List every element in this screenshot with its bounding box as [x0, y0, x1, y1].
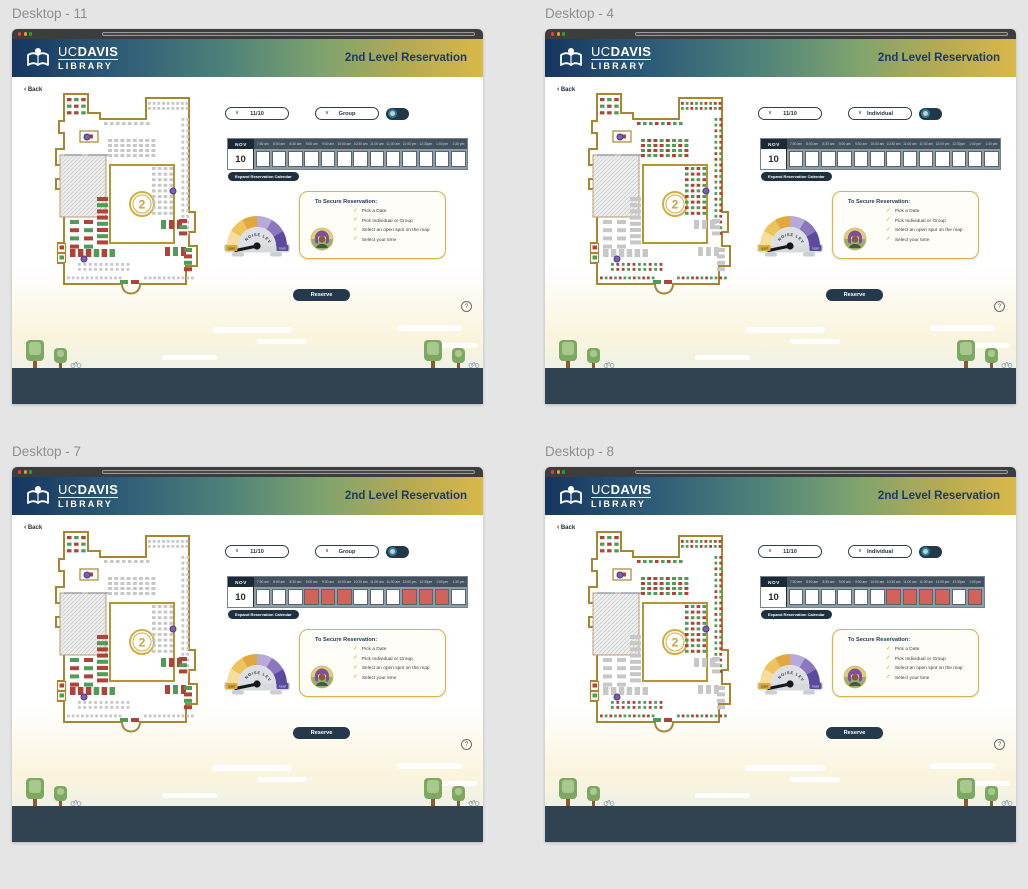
seat-taken[interactable]	[685, 644, 689, 647]
seat-open[interactable]	[686, 107, 689, 110]
time-slot-booked[interactable]	[935, 589, 950, 605]
seat-taken[interactable]	[682, 715, 685, 718]
seat-open[interactable]	[600, 543, 605, 546]
seat-open[interactable]	[702, 639, 706, 642]
seat-open[interactable]	[715, 630, 718, 633]
seat-taken[interactable]	[70, 249, 76, 257]
seat-open[interactable]	[715, 624, 718, 627]
seat-open[interactable]	[649, 122, 653, 125]
seat-open[interactable]	[81, 111, 86, 114]
seat-open[interactable]	[715, 147, 718, 150]
seat-taken[interactable]	[690, 107, 693, 110]
seat-open[interactable]	[691, 605, 695, 608]
seat-taken[interactable]	[719, 204, 722, 207]
seat-taken[interactable]	[719, 579, 722, 582]
seat-taken[interactable]	[600, 549, 605, 552]
time-slot-open[interactable]	[886, 151, 901, 167]
seat-taken[interactable]	[131, 718, 139, 722]
seat-open[interactable]	[691, 178, 695, 181]
seat-taken[interactable]	[697, 611, 701, 614]
time-slot-booked[interactable]	[968, 589, 983, 605]
seat-taken[interactable]	[697, 195, 701, 198]
seat-open[interactable]	[697, 616, 701, 619]
seat-open[interactable]	[702, 611, 706, 614]
time-slot-open[interactable]	[304, 151, 319, 167]
seat-open[interactable]	[700, 540, 703, 543]
seat-taken[interactable]	[719, 277, 722, 280]
seat-taken[interactable]	[102, 687, 108, 695]
seat-open[interactable]	[70, 236, 79, 240]
seat-taken[interactable]	[719, 192, 722, 195]
seat-open[interactable]	[702, 212, 706, 215]
seat-taken[interactable]	[719, 545, 722, 548]
seat-open[interactable]	[701, 715, 704, 718]
seat-open[interactable]	[647, 144, 651, 147]
seat-open[interactable]	[691, 616, 695, 619]
seat-taken[interactable]	[179, 231, 187, 235]
seat-open[interactable]	[70, 674, 79, 678]
seat-open[interactable]	[719, 613, 722, 616]
seat-taken[interactable]	[719, 715, 722, 718]
seat-open[interactable]	[647, 154, 651, 157]
seat-taken[interactable]	[685, 195, 689, 198]
seat-open[interactable]	[638, 701, 641, 704]
seat-taken[interactable]	[660, 263, 663, 266]
time-slot-open[interactable]	[952, 589, 967, 605]
seat-taken[interactable]	[719, 562, 722, 565]
seat-taken[interactable]	[593, 684, 598, 688]
time-slot-open[interactable]	[805, 151, 820, 167]
seat-taken[interactable]	[681, 102, 684, 105]
seat-open[interactable]	[660, 587, 664, 590]
seat-taken[interactable]	[67, 98, 72, 101]
seat-open[interactable]	[719, 590, 722, 593]
floor-map[interactable]: 2	[34, 529, 210, 737]
seat-open[interactable]	[685, 212, 689, 215]
seat-open[interactable]	[719, 129, 722, 132]
time-slot-booked[interactable]	[886, 589, 901, 605]
seat-taken[interactable]	[642, 277, 645, 280]
seat-open[interactable]	[624, 715, 627, 718]
seat-open[interactable]	[97, 234, 108, 238]
seat-taken[interactable]	[691, 622, 695, 625]
seat-open[interactable]	[710, 715, 713, 718]
seat-taken[interactable]	[715, 596, 718, 599]
time-slot-open[interactable]	[353, 589, 368, 605]
seat-taken[interactable]	[184, 705, 192, 709]
time-slot-open[interactable]	[402, 151, 417, 167]
seat-taken[interactable]	[697, 212, 701, 215]
seat-taken[interactable]	[70, 228, 79, 232]
seat-open[interactable]	[161, 658, 166, 667]
seat-taken[interactable]	[664, 718, 672, 722]
seat-taken[interactable]	[74, 111, 79, 114]
map-toggle-switch[interactable]	[919, 108, 942, 120]
seat-taken[interactable]	[691, 201, 695, 204]
seat-taken[interactable]	[102, 249, 108, 257]
seat-taken[interactable]	[709, 107, 712, 110]
seat-taken[interactable]	[697, 639, 701, 642]
seat-taken[interactable]	[647, 587, 651, 590]
time-slot-open[interactable]	[353, 151, 368, 167]
time-slot-booked[interactable]	[435, 589, 450, 605]
seat-open[interactable]	[695, 545, 698, 548]
seat-open[interactable]	[677, 277, 680, 280]
seat-taken[interactable]	[709, 545, 712, 548]
seat-open[interactable]	[714, 107, 717, 110]
seat-open[interactable]	[661, 122, 665, 125]
seat-taken[interactable]	[622, 706, 625, 709]
seat-taken[interactable]	[600, 536, 605, 539]
time-slot-booked[interactable]	[419, 589, 434, 605]
seat-open[interactable]	[647, 582, 651, 585]
seat-taken[interactable]	[719, 619, 722, 622]
seat-open[interactable]	[672, 139, 676, 142]
time-slot-open[interactable]	[272, 589, 287, 605]
seat-open[interactable]	[685, 173, 689, 176]
seat-taken[interactable]	[78, 249, 84, 257]
seat-open[interactable]	[702, 633, 706, 636]
seat-open[interactable]	[686, 540, 689, 543]
seat-taken[interactable]	[685, 178, 689, 181]
seat-open[interactable]	[715, 653, 718, 656]
seat-open[interactable]	[697, 189, 701, 192]
seat-taken[interactable]	[715, 158, 718, 161]
seat-taken[interactable]	[672, 154, 676, 157]
seat-open[interactable]	[715, 715, 718, 718]
seat-open[interactable]	[715, 562, 718, 565]
seat-open[interactable]	[643, 122, 647, 125]
seat-open[interactable]	[715, 124, 718, 127]
seat-taken[interactable]	[633, 268, 636, 271]
date-dropdown[interactable]: ∨ 11/10	[758, 107, 822, 120]
reserve-button[interactable]: Reserve	[826, 289, 883, 301]
time-slot-open[interactable]	[451, 589, 466, 605]
seat-taken[interactable]	[86, 249, 92, 257]
seat-taken[interactable]	[691, 277, 694, 280]
seat-open[interactable]	[184, 261, 192, 265]
seat-taken[interactable]	[653, 139, 657, 142]
seat-open[interactable]	[705, 107, 708, 110]
seat-open[interactable]	[672, 587, 676, 590]
expand-calendar-button[interactable]: Expand Reservation Calendar	[761, 172, 832, 181]
seat-open[interactable]	[607, 536, 612, 539]
time-slot-booked[interactable]	[304, 589, 319, 605]
seat-open[interactable]	[702, 167, 706, 170]
seat-open[interactable]	[643, 706, 646, 709]
seat-open[interactable]	[695, 107, 698, 110]
seat-taken[interactable]	[666, 139, 670, 142]
seat-taken[interactable]	[684, 587, 688, 590]
seat-taken[interactable]	[649, 706, 652, 709]
seat-open[interactable]	[715, 164, 718, 167]
seat-open[interactable]	[700, 102, 703, 105]
seat-taken[interactable]	[647, 277, 650, 280]
seat-open[interactable]	[685, 627, 689, 630]
seat-open[interactable]	[701, 277, 704, 280]
seat-taken[interactable]	[600, 277, 603, 280]
seat-open[interactable]	[678, 592, 682, 595]
seat-open[interactable]	[715, 573, 718, 576]
time-slot-open[interactable]	[968, 151, 983, 167]
seat-taken[interactable]	[667, 560, 671, 563]
seat-open[interactable]	[94, 249, 100, 257]
date-dropdown[interactable]: ∨ 11/10	[758, 545, 822, 558]
seat-open[interactable]	[605, 715, 608, 718]
seat-open[interactable]	[70, 658, 79, 662]
seat-taken[interactable]	[685, 633, 689, 636]
seat-open[interactable]	[719, 198, 722, 201]
time-slot-open[interactable]	[837, 589, 852, 605]
seat-taken[interactable]	[67, 111, 72, 114]
seat-open[interactable]	[60, 256, 65, 260]
seat-taken[interactable]	[600, 111, 605, 114]
time-slot-open[interactable]	[288, 151, 303, 167]
seat-taken[interactable]	[607, 549, 612, 552]
seat-open[interactable]	[719, 158, 722, 161]
time-slot-booked[interactable]	[337, 589, 352, 605]
seat-taken[interactable]	[697, 184, 701, 187]
time-slot-booked[interactable]	[321, 589, 336, 605]
seat-taken[interactable]	[678, 144, 682, 147]
seat-taken[interactable]	[714, 102, 717, 105]
seat-open[interactable]	[679, 560, 683, 563]
seat-taken[interactable]	[653, 577, 657, 580]
seat-taken[interactable]	[97, 197, 108, 201]
seat-open[interactable]	[638, 263, 641, 266]
time-slot-open[interactable]	[370, 151, 385, 167]
seat-taken[interactable]	[637, 560, 641, 563]
seat-open[interactable]	[653, 592, 657, 595]
seat-taken[interactable]	[97, 240, 108, 244]
seat-taken[interactable]	[653, 582, 657, 585]
time-slot-open[interactable]	[984, 151, 999, 167]
seat-taken[interactable]	[78, 687, 84, 695]
seat-taken[interactable]	[184, 692, 192, 696]
seat-open[interactable]	[684, 582, 688, 585]
seat-open[interactable]	[614, 543, 619, 546]
floor-map[interactable]: 2	[567, 529, 743, 737]
seat-open[interactable]	[715, 647, 718, 650]
seat-taken[interactable]	[169, 658, 174, 667]
seat-taken[interactable]	[719, 124, 722, 127]
seat-taken[interactable]	[719, 141, 722, 144]
seat-taken[interactable]	[60, 246, 65, 250]
seat-taken[interactable]	[719, 602, 722, 605]
seat-taken[interactable]	[179, 219, 187, 223]
seat-open[interactable]	[702, 201, 706, 204]
seat-taken[interactable]	[97, 228, 108, 232]
seat-open[interactable]	[622, 263, 625, 266]
help-icon[interactable]: ?	[461, 301, 472, 312]
seat-taken[interactable]	[660, 592, 664, 595]
seat-taken[interactable]	[690, 545, 693, 548]
seat-taken[interactable]	[614, 536, 619, 539]
seat-taken[interactable]	[691, 650, 695, 653]
seat-taken[interactable]	[633, 701, 636, 704]
seat-taken[interactable]	[715, 590, 718, 593]
time-slot-open[interactable]	[419, 151, 434, 167]
seat-open[interactable]	[638, 277, 641, 280]
seat-taken[interactable]	[67, 549, 72, 552]
seat-taken[interactable]	[719, 630, 722, 633]
seat-taken[interactable]	[179, 657, 187, 661]
seat-taken[interactable]	[691, 173, 695, 176]
seat-open[interactable]	[614, 111, 619, 114]
seat-open[interactable]	[672, 149, 676, 152]
seat-taken[interactable]	[666, 149, 670, 152]
seat-taken[interactable]	[684, 154, 688, 157]
seat-taken[interactable]	[97, 635, 108, 639]
seat-taken[interactable]	[685, 616, 689, 619]
seat-taken[interactable]	[641, 144, 645, 147]
seat-taken[interactable]	[84, 236, 93, 240]
seat-open[interactable]	[702, 650, 706, 653]
seat-taken[interactable]	[619, 715, 622, 718]
seat-taken[interactable]	[702, 206, 706, 209]
seat-open[interactable]	[654, 701, 657, 704]
seat-open[interactable]	[715, 602, 718, 605]
help-icon[interactable]: ?	[461, 739, 472, 750]
seat-taken[interactable]	[666, 587, 670, 590]
seat-taken[interactable]	[609, 277, 612, 280]
seat-taken[interactable]	[715, 198, 718, 201]
seat-open[interactable]	[643, 560, 647, 563]
seat-taken[interactable]	[719, 135, 722, 138]
reserve-button[interactable]: Reserve	[293, 727, 350, 739]
seat-taken[interactable]	[616, 263, 619, 266]
seat-open[interactable]	[97, 203, 108, 207]
seat-taken[interactable]	[165, 247, 170, 256]
seat-open[interactable]	[84, 666, 93, 670]
seat-taken[interactable]	[696, 715, 699, 718]
seat-taken[interactable]	[627, 701, 630, 704]
seat-taken[interactable]	[697, 167, 701, 170]
seat-taken[interactable]	[705, 540, 708, 543]
seat-taken[interactable]	[719, 102, 722, 105]
seat-open[interactable]	[67, 105, 72, 108]
seat-open[interactable]	[685, 201, 689, 204]
seat-open[interactable]	[70, 220, 79, 224]
seat-open[interactable]	[715, 277, 718, 280]
seat-taken[interactable]	[719, 624, 722, 627]
seat-open[interactable]	[624, 277, 627, 280]
seat-taken[interactable]	[719, 107, 722, 110]
mode-dropdown[interactable]: ∨ Individual	[848, 545, 912, 558]
time-slot-open[interactable]	[854, 151, 869, 167]
time-slot-open[interactable]	[256, 589, 271, 605]
seat-taken[interactable]	[600, 98, 605, 101]
reserve-button[interactable]: Reserve	[293, 289, 350, 301]
seat-open[interactable]	[643, 268, 646, 271]
seat-taken[interactable]	[637, 122, 641, 125]
seat-open[interactable]	[684, 144, 688, 147]
time-slot-booked[interactable]	[903, 589, 918, 605]
seat-taken[interactable]	[719, 118, 722, 121]
seat-open[interactable]	[685, 639, 689, 642]
seat-taken[interactable]	[609, 715, 612, 718]
seat-open[interactable]	[660, 149, 664, 152]
seat-taken[interactable]	[705, 102, 708, 105]
seat-taken[interactable]	[719, 169, 722, 172]
seat-taken[interactable]	[697, 201, 701, 204]
seat-open[interactable]	[653, 280, 661, 284]
seat-taken[interactable]	[719, 147, 722, 150]
seat-taken[interactable]	[690, 540, 693, 543]
seat-taken[interactable]	[719, 215, 722, 218]
seat-open[interactable]	[697, 644, 701, 647]
seat-taken[interactable]	[616, 706, 619, 709]
seat-open[interactable]	[715, 186, 718, 189]
seat-open[interactable]	[120, 280, 128, 284]
seat-open[interactable]	[641, 587, 645, 590]
time-slot-open[interactable]	[272, 151, 287, 167]
seat-open[interactable]	[652, 277, 655, 280]
seat-open[interactable]	[614, 277, 617, 280]
seat-open[interactable]	[654, 268, 657, 271]
time-slot-open[interactable]	[903, 151, 918, 167]
seat-open[interactable]	[593, 256, 598, 260]
seat-taken[interactable]	[593, 246, 598, 250]
seat-taken[interactable]	[641, 582, 645, 585]
seat-open[interactable]	[715, 192, 718, 195]
seat-open[interactable]	[81, 105, 86, 108]
seat-taken[interactable]	[691, 639, 695, 642]
seat-taken[interactable]	[719, 540, 722, 543]
seat-open[interactable]	[673, 560, 677, 563]
seat-open[interactable]	[685, 611, 689, 614]
map-toggle-switch[interactable]	[919, 546, 942, 558]
seat-taken[interactable]	[705, 715, 708, 718]
seat-taken[interactable]	[715, 129, 718, 132]
seat-taken[interactable]	[653, 587, 657, 590]
seat-taken[interactable]	[97, 666, 108, 670]
seat-open[interactable]	[681, 107, 684, 110]
seat-open[interactable]	[677, 715, 680, 718]
seat-taken[interactable]	[697, 622, 701, 625]
seat-taken[interactable]	[184, 254, 192, 258]
seat-taken[interactable]	[70, 687, 76, 695]
seat-open[interactable]	[672, 577, 676, 580]
seat-open[interactable]	[652, 715, 655, 718]
seat-taken[interactable]	[666, 577, 670, 580]
time-slot-open[interactable]	[870, 151, 885, 167]
date-dropdown[interactable]: ∨ 11/10	[225, 545, 289, 558]
mode-dropdown[interactable]: ∨ Group	[315, 107, 379, 120]
seat-open[interactable]	[97, 660, 108, 664]
seat-open[interactable]	[702, 184, 706, 187]
seat-open[interactable]	[647, 592, 651, 595]
seat-open[interactable]	[97, 641, 108, 645]
seat-taken[interactable]	[719, 209, 722, 212]
seat-taken[interactable]	[660, 268, 663, 271]
seat-open[interactable]	[691, 167, 695, 170]
seat-taken[interactable]	[660, 706, 663, 709]
seat-open[interactable]	[611, 263, 614, 266]
seat-taken[interactable]	[702, 616, 706, 619]
seat-taken[interactable]	[660, 144, 664, 147]
seat-open[interactable]	[666, 154, 670, 157]
seat-taken[interactable]	[685, 167, 689, 170]
seat-taken[interactable]	[74, 549, 79, 552]
seat-open[interactable]	[678, 587, 682, 590]
seat-open[interactable]	[697, 178, 701, 181]
seat-taken[interactable]	[86, 687, 92, 695]
seat-open[interactable]	[627, 706, 630, 709]
seat-open[interactable]	[641, 577, 645, 580]
seat-taken[interactable]	[691, 627, 695, 630]
seat-open[interactable]	[686, 545, 689, 548]
